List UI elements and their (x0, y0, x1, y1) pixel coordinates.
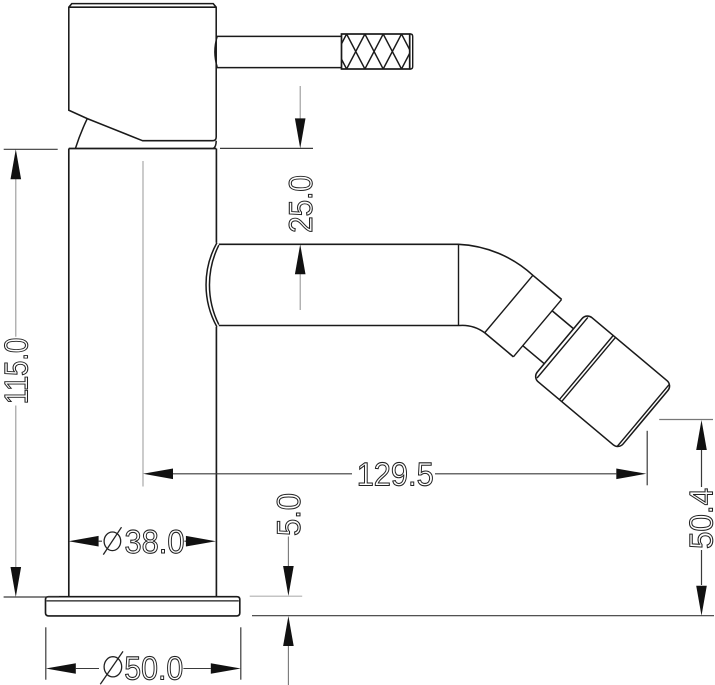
svg-text:38.0: 38.0 (125, 523, 185, 560)
svg-text:25.0: 25.0 (282, 175, 319, 233)
svg-text:129.5: 129.5 (357, 456, 434, 493)
svg-text:115.0: 115.0 (0, 338, 35, 405)
svg-text:50.0: 50.0 (124, 650, 183, 685)
svg-text:50.4: 50.4 (683, 488, 715, 549)
svg-text:5.0: 5.0 (270, 493, 307, 536)
